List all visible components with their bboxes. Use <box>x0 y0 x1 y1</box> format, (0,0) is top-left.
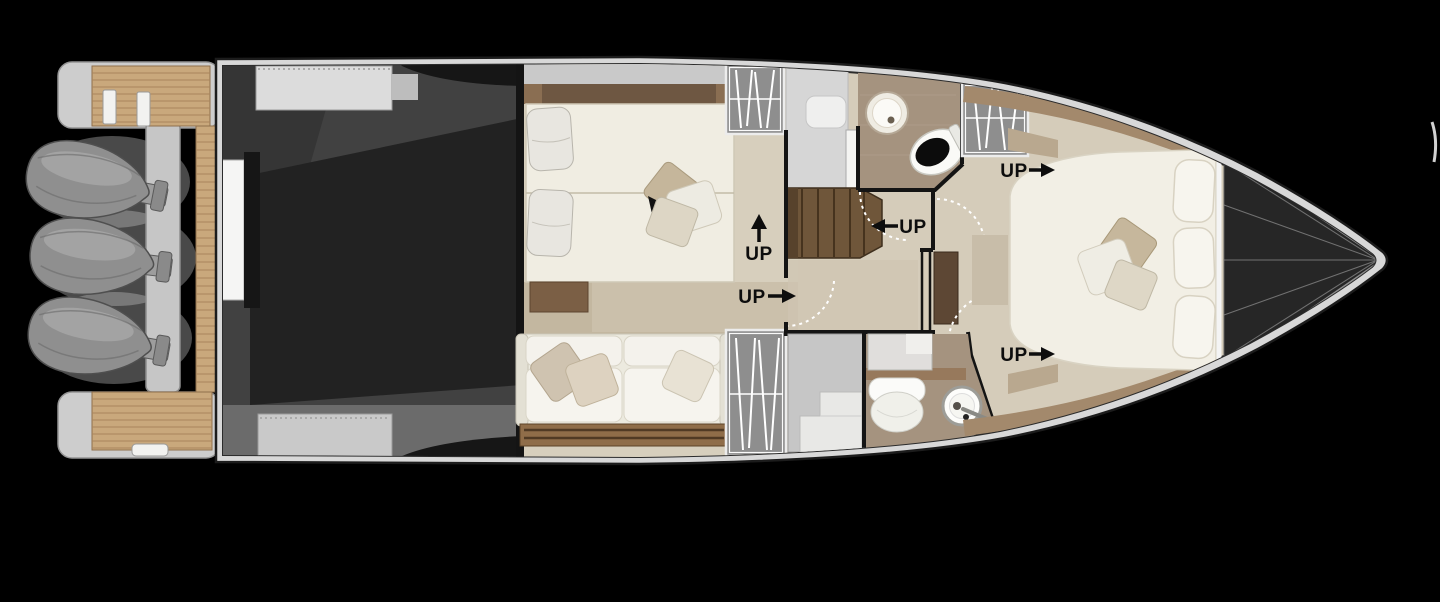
platform-hatch <box>103 90 116 124</box>
bed-pillow <box>1172 159 1215 223</box>
garage-hatch-bottom <box>258 414 392 458</box>
garage-hatch-top <box>256 66 392 110</box>
bed-pillow <box>1172 295 1216 360</box>
stair-landing <box>786 64 858 188</box>
bed-pillow <box>1173 227 1215 288</box>
tender-garage <box>218 60 522 462</box>
vanity-counter-step <box>906 334 932 354</box>
teak-platform-bottom <box>92 392 212 456</box>
sink-drain <box>888 117 895 124</box>
cabin-floor-patch <box>972 235 1008 305</box>
sink-bowl <box>873 99 902 128</box>
sink-faucet <box>953 402 961 410</box>
garage-slot-frame <box>244 152 260 308</box>
wood-cabinet <box>934 252 958 324</box>
bed-headboard <box>524 84 734 104</box>
head-top <box>858 68 974 190</box>
floor-rug <box>592 282 798 332</box>
teak-platform-side <box>196 126 216 392</box>
shower-compartment <box>788 334 864 452</box>
stern-swim-platform <box>20 62 220 458</box>
edge-artifact <box>1432 122 1436 162</box>
teak-platform-top <box>92 66 210 126</box>
corridor-floor-patch <box>788 260 918 330</box>
up-text: UP <box>1000 345 1027 366</box>
landing-counter <box>806 96 846 128</box>
bed-pillow <box>526 189 573 257</box>
garage-side-slot <box>222 160 244 300</box>
hull-shelf <box>524 62 734 84</box>
up-text: UP <box>738 287 765 308</box>
bow-section <box>1219 148 1384 372</box>
staircase-main <box>786 188 882 258</box>
sofa-base-step <box>520 424 728 446</box>
nightstand <box>530 282 588 312</box>
headboard-endcap <box>524 84 542 104</box>
toilet-lower <box>869 378 925 432</box>
garage-hatch-tab <box>392 74 418 100</box>
up-text: UP <box>899 217 926 238</box>
bed-pillow <box>526 107 574 172</box>
hanging-locker-bottom <box>726 330 786 456</box>
up-text: UP <box>745 244 772 265</box>
platform-hatch <box>132 444 168 456</box>
mid-cabin-sofa <box>516 334 732 426</box>
hanging-locker-top <box>726 64 784 134</box>
yacht-floorplan-svg: UP UP UP UP UP <box>0 0 1440 602</box>
platform-hatch <box>137 92 150 126</box>
yacht-floorplan-page: UP UP UP UP UP <box>0 0 1440 602</box>
up-text: UP <box>1000 161 1027 182</box>
